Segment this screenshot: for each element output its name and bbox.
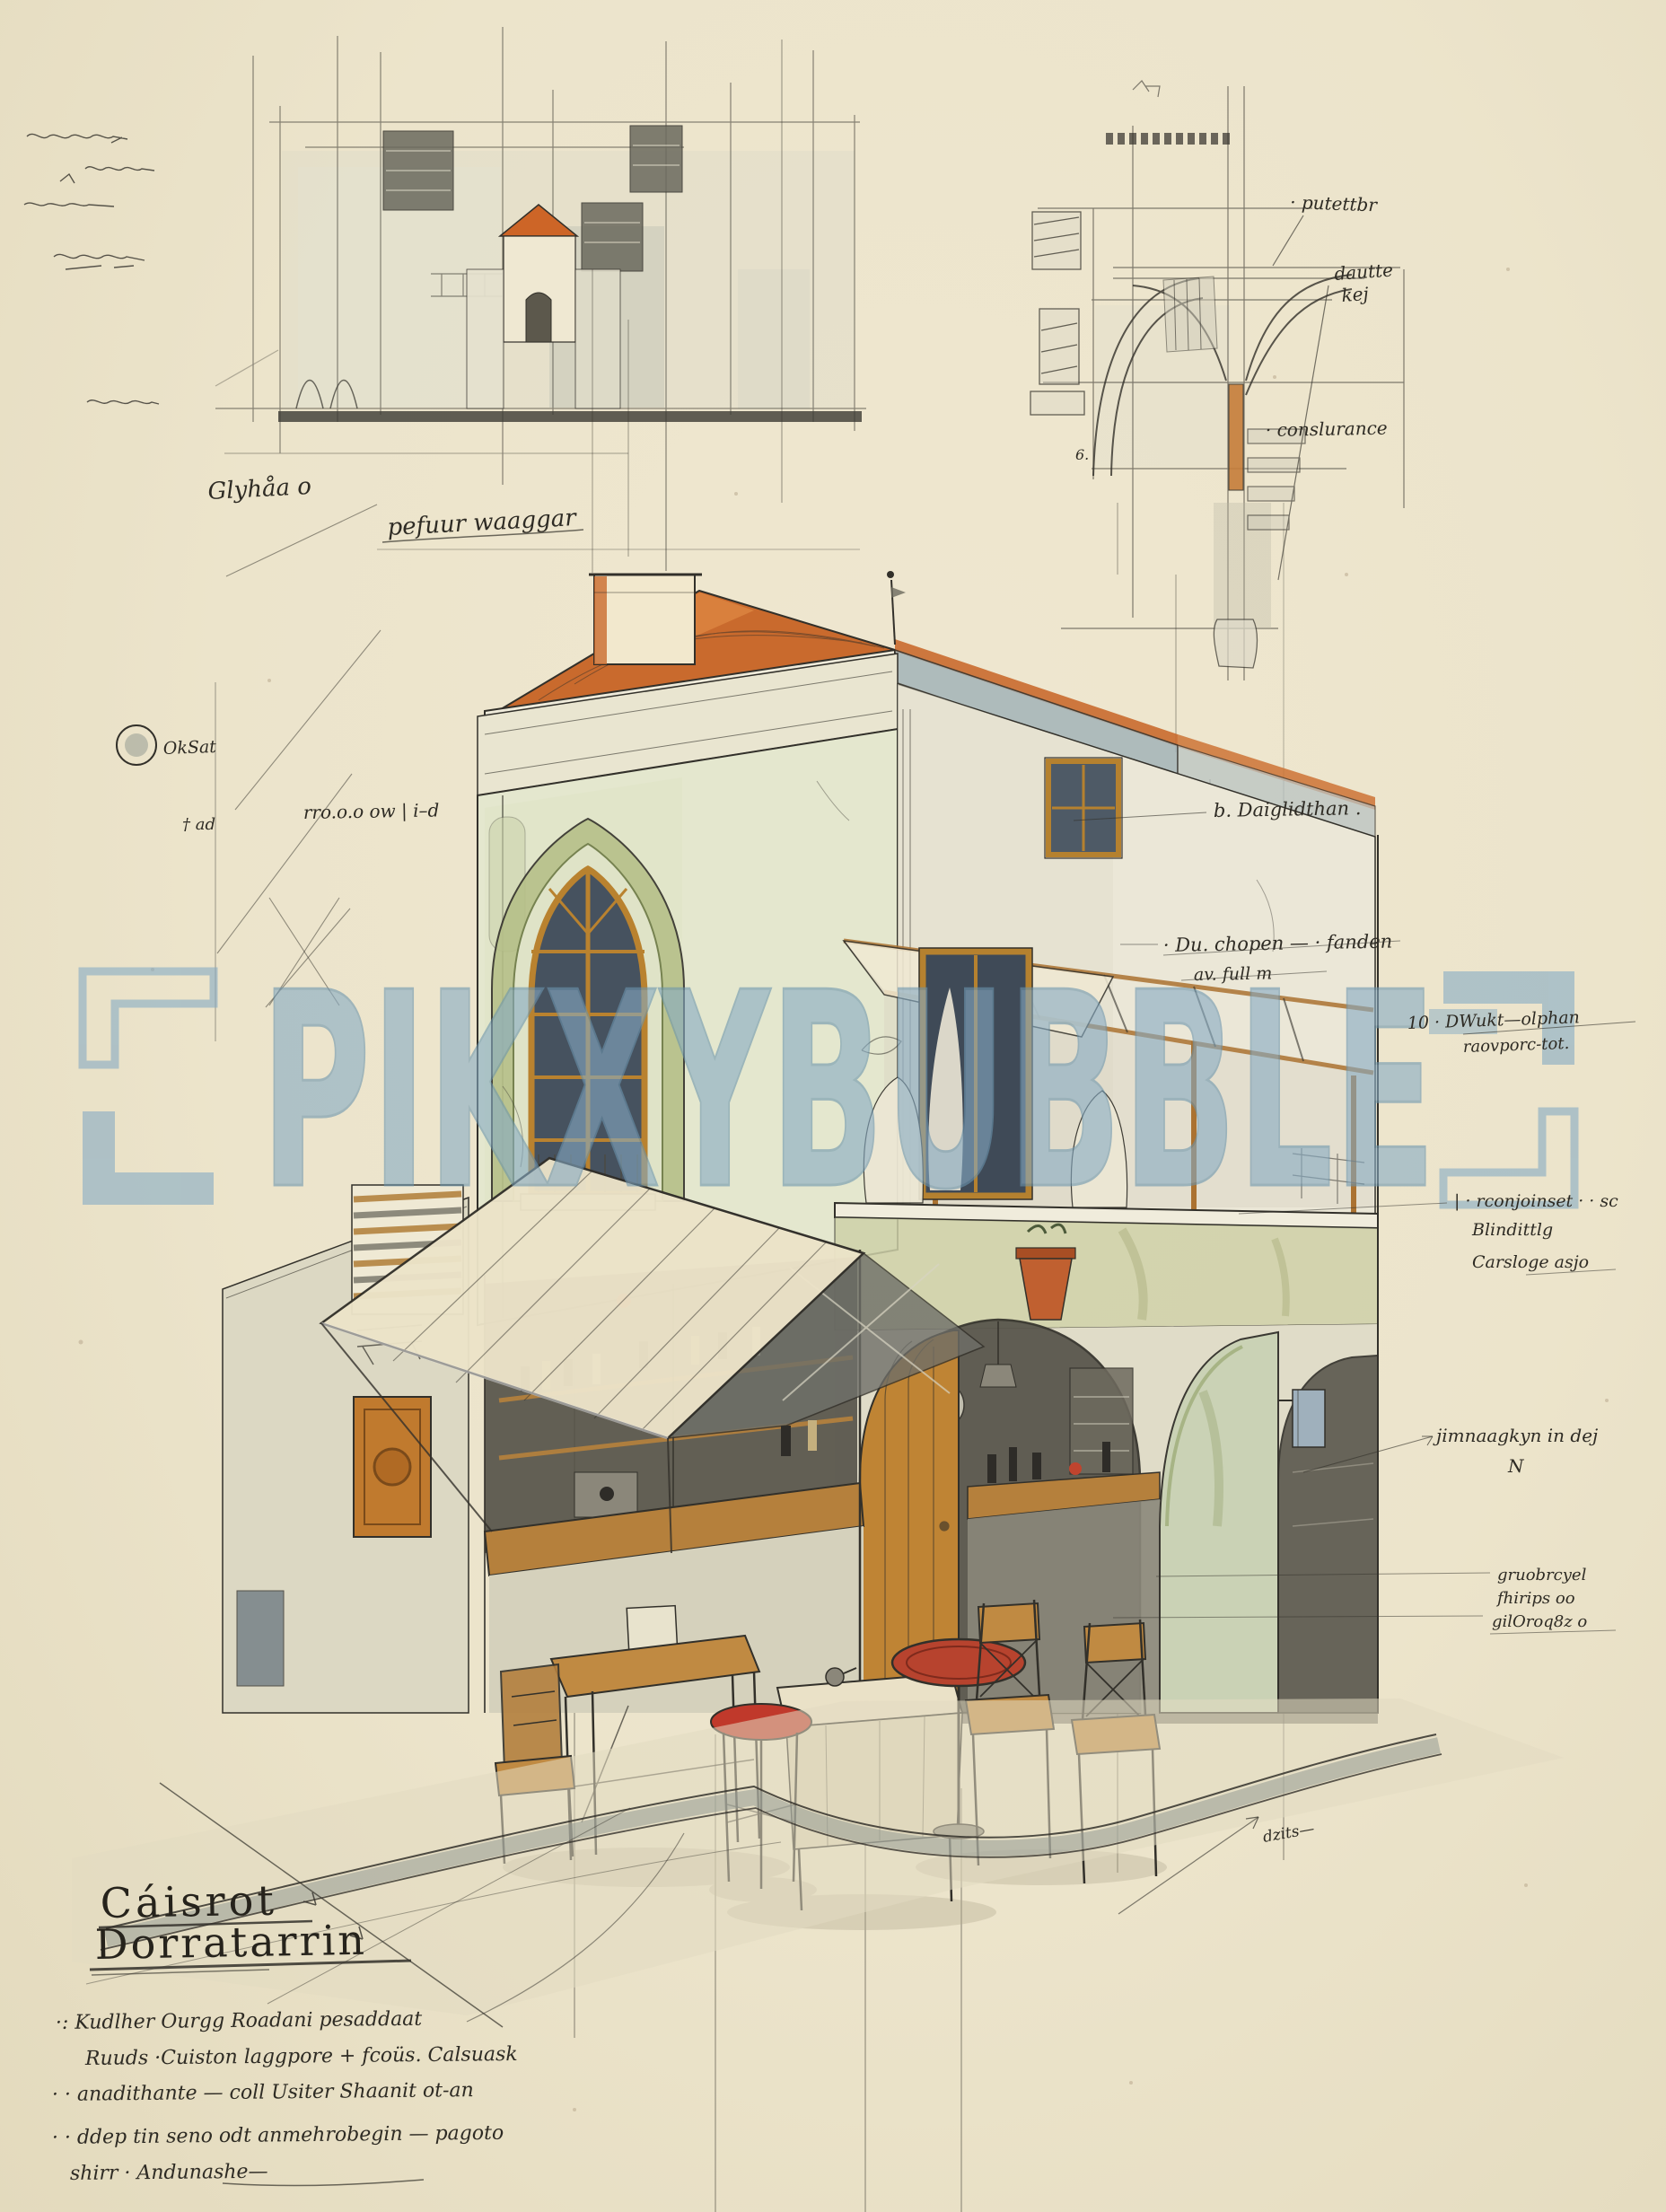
elevation-label: Glyhåa o xyxy=(207,472,312,505)
baseline-note: rro.o.o ow | i–d xyxy=(303,799,440,824)
detail-dim: 6. xyxy=(1075,446,1089,463)
ref-note-2: raovporc-tot. xyxy=(1462,1034,1569,1057)
slit-window xyxy=(237,1591,284,1686)
roof-note: b. Daiglidthan . xyxy=(1214,797,1362,821)
ground-note-1: jimnaagkyn in dej xyxy=(1433,1425,1598,1446)
note-line-3: · · anadithante — coll Usiter Shaanit ot… xyxy=(52,2079,474,2106)
orange-hatch xyxy=(354,1397,431,1537)
architectural-sketch-canvas: PIKXYBUBBLE Glyhåa o pefuur waaggar · pu… xyxy=(0,0,1666,2212)
detail-note-bottom: · conslurance xyxy=(1266,417,1388,441)
pergola-note-2: av. full m xyxy=(1194,963,1273,985)
detail-note-mid1: dautte xyxy=(1334,259,1394,285)
materials-note-2: Blindittlg xyxy=(1471,1220,1553,1240)
watermark-bracket-left xyxy=(83,971,214,1205)
watermark-bracket-right xyxy=(1443,971,1574,1205)
street-group xyxy=(72,1698,1564,2027)
corner-note-3: gilOroq8z o xyxy=(1492,1612,1587,1631)
sidewalk-wash xyxy=(72,1698,1564,2015)
note-line-5: shirr · Andunashe— xyxy=(70,2161,268,2185)
plan-marker-label: OkSat xyxy=(162,737,216,759)
detail-steps xyxy=(1248,215,1328,580)
watermark: PIKXYBUBBLE xyxy=(83,935,1574,1249)
detail-column-base xyxy=(1214,619,1257,668)
detail-note-mid2: kej xyxy=(1341,283,1370,306)
title-line-2: Dorratarrin xyxy=(94,1916,367,1969)
roof-finial xyxy=(887,571,906,645)
small-window xyxy=(1045,758,1122,858)
detail-capital-blocks xyxy=(1030,212,1084,415)
corner-note-2: fhirips oo xyxy=(1495,1589,1575,1608)
datum-note: † ad xyxy=(182,815,215,834)
materials-note-3: Carsloge asjo xyxy=(1472,1252,1589,1272)
chimney xyxy=(589,575,702,664)
elevation-plinth xyxy=(278,411,862,422)
notes-list: ·: Kudlher Ourgg Roadani pesaddaat Ruuds… xyxy=(52,2008,518,2186)
curb-note: dzits— xyxy=(1261,1820,1315,1847)
detail-dentils xyxy=(1106,133,1230,145)
ground-note-2: N xyxy=(1507,1455,1525,1477)
note-line-4: · · ddep tin seno odt anmehrobegin — pag… xyxy=(52,2122,504,2149)
corner-note-1: gruobrcyel xyxy=(1497,1566,1587,1584)
dimension-scribbles xyxy=(24,134,159,404)
artwork-page: PIKXYBUBBLE Glyhåa o pefuur waaggar · pu… xyxy=(0,0,1666,2212)
note-line-2: Ruuds ·Cuiston laggpore + fcoüs. Calsuas… xyxy=(84,2043,518,2070)
detail-note-top: · putettbr xyxy=(1290,191,1379,215)
plan-marker-group: OkSat xyxy=(117,725,217,765)
detail-voussoir xyxy=(1163,276,1217,352)
materials-note-1: | · rconjoinset · · sc xyxy=(1454,1191,1618,1211)
elevation-sketch xyxy=(24,27,866,571)
detail-column-fill xyxy=(1229,384,1243,490)
note-line-1: ·: Kudlher Ourgg Roadani pesaddaat xyxy=(56,2008,423,2034)
